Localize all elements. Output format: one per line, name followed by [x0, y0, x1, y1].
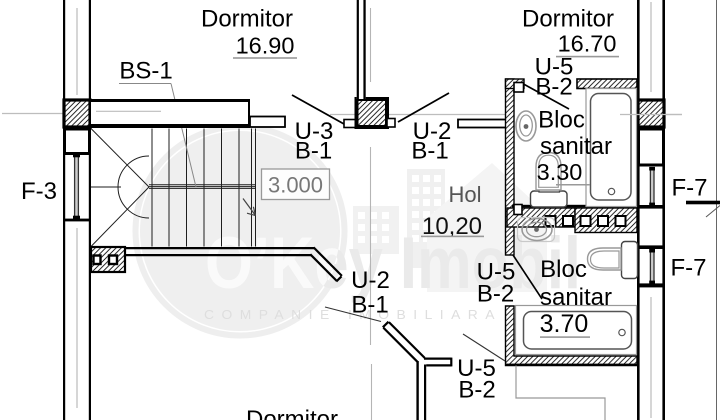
- svg-text:B-1: B-1: [351, 292, 388, 319]
- svg-text:3.000: 3.000: [268, 173, 323, 198]
- svg-text:F-3: F-3: [21, 178, 57, 205]
- svg-text:BS-1: BS-1: [119, 57, 172, 84]
- svg-text:B-2: B-2: [535, 74, 572, 101]
- svg-text:B-2: B-2: [458, 377, 495, 404]
- svg-text:16.90: 16.90: [236, 33, 295, 59]
- svg-text:B-2: B-2: [477, 281, 514, 308]
- svg-text:Hol: Hol: [448, 182, 481, 207]
- svg-text:Bloc: Bloc: [540, 256, 587, 283]
- svg-text:F-7: F-7: [672, 175, 708, 202]
- svg-text:sanitar: sanitar: [540, 133, 612, 160]
- svg-text:F-7: F-7: [671, 255, 707, 282]
- svg-text:B-1: B-1: [295, 138, 332, 165]
- svg-text:B-1: B-1: [411, 138, 448, 165]
- svg-text:Dormitor: Dormitor: [246, 406, 338, 420]
- svg-text:U-2: U-2: [351, 267, 390, 294]
- svg-text:Dormitor: Dormitor: [522, 5, 614, 32]
- svg-text:Bloc: Bloc: [538, 107, 585, 134]
- svg-text:3.70: 3.70: [540, 310, 589, 338]
- svg-text:Dormitor: Dormitor: [201, 5, 293, 32]
- svg-text:3.30: 3.30: [537, 159, 583, 185]
- svg-text:sanitar: sanitar: [540, 284, 612, 311]
